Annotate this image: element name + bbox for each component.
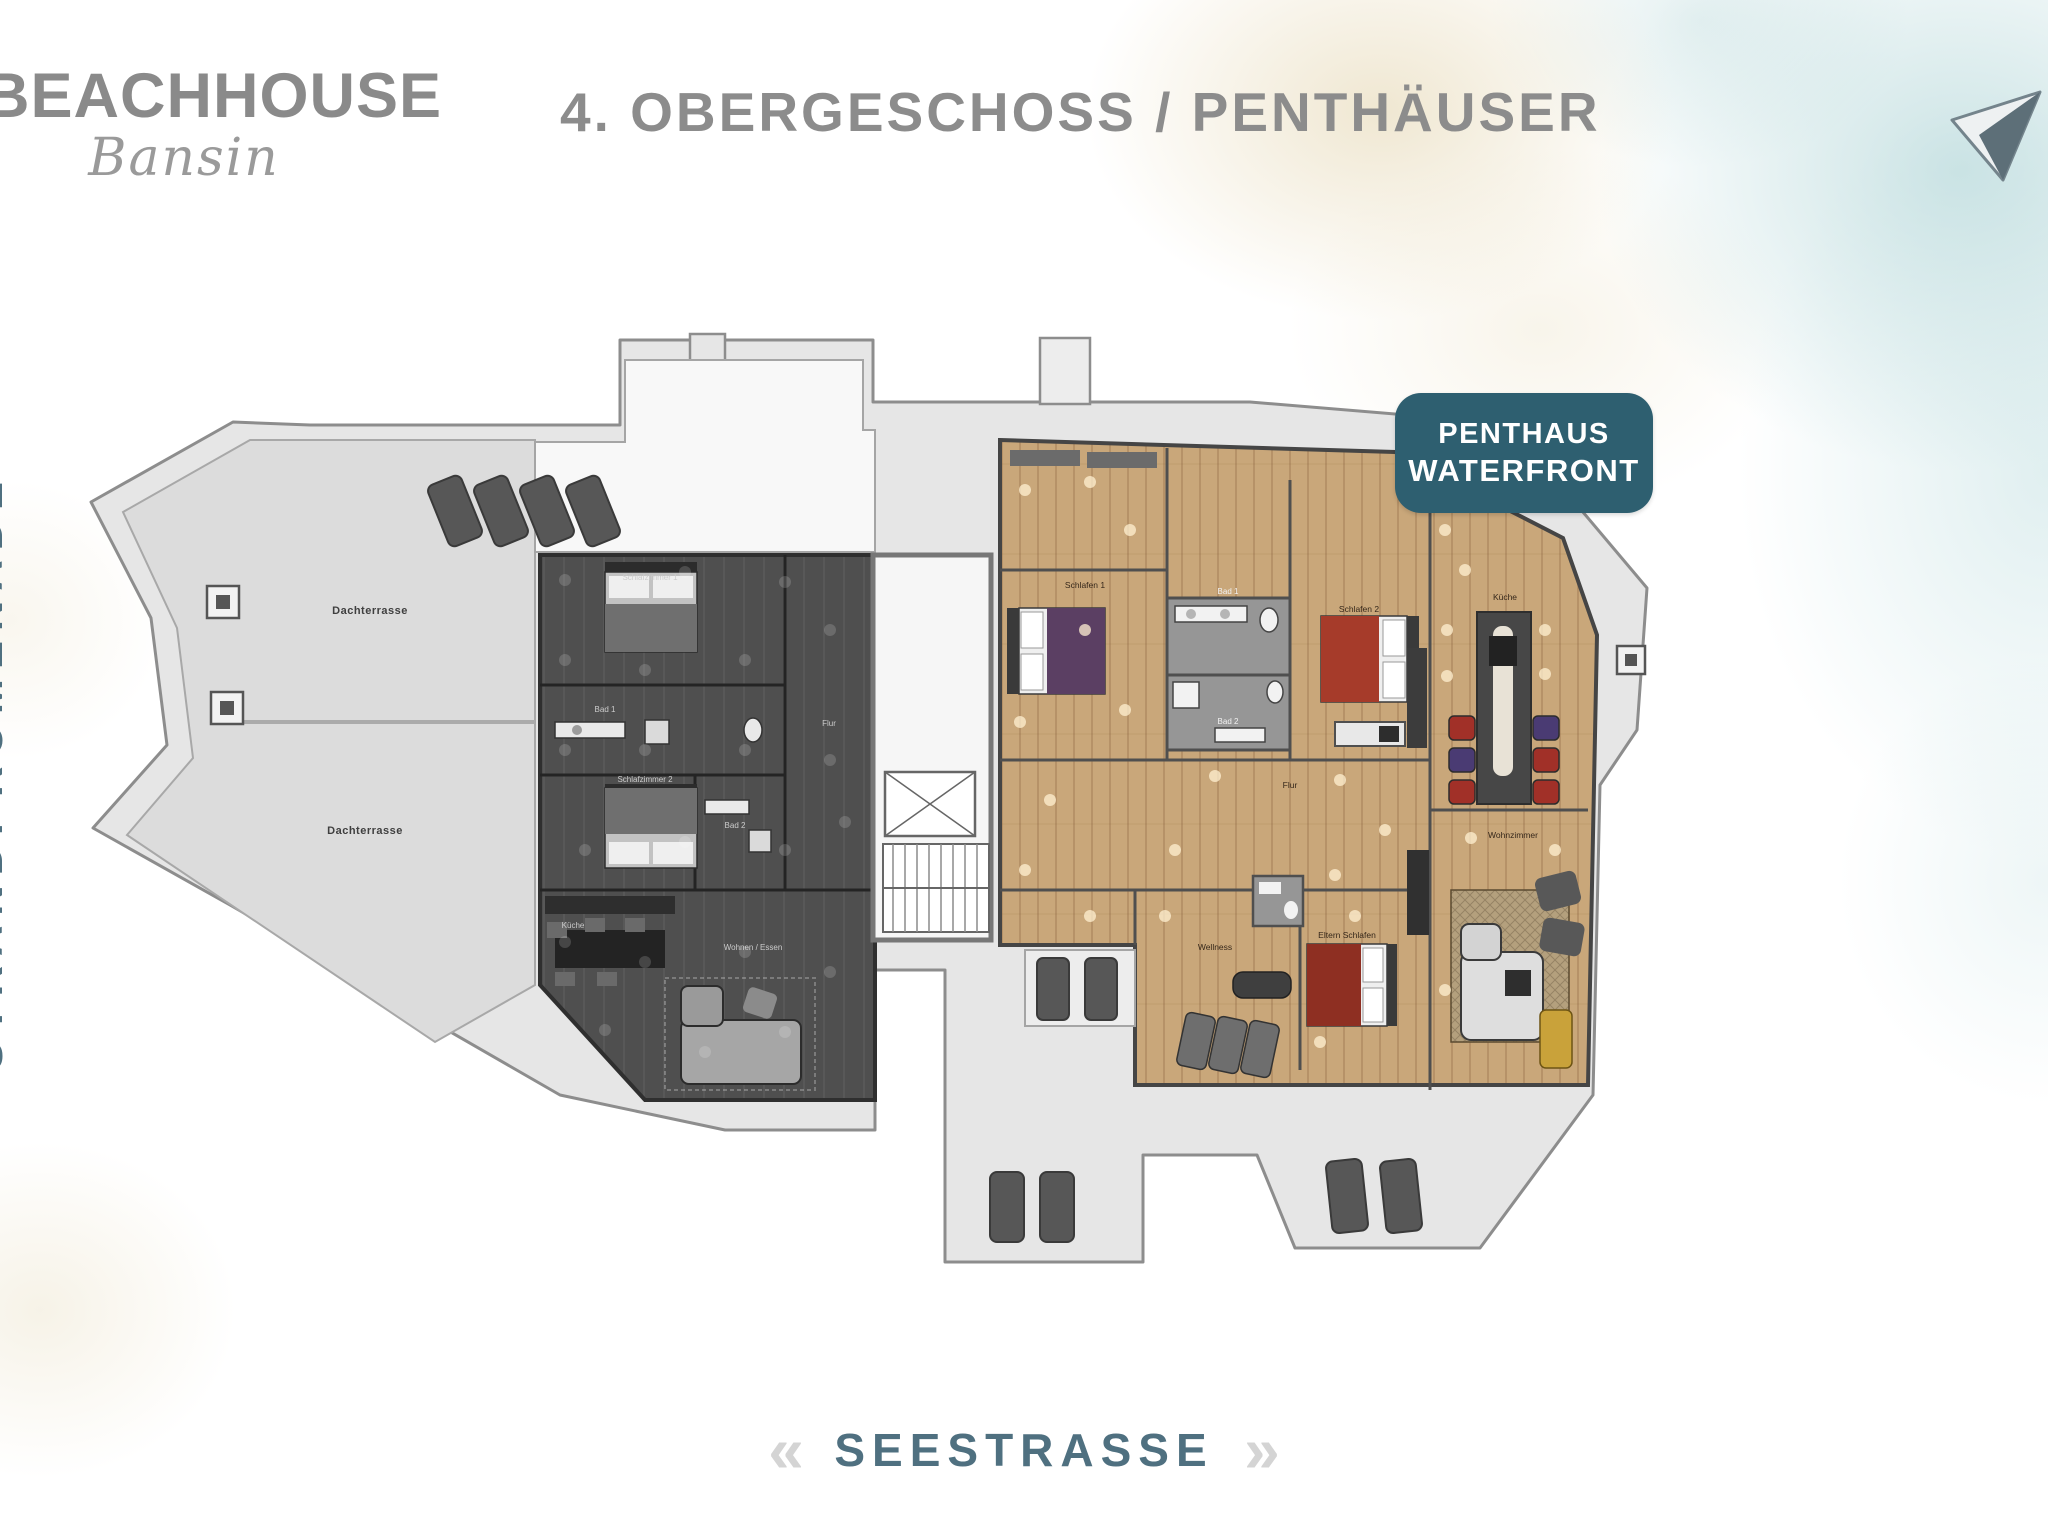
dining-island: [1477, 612, 1531, 804]
planter-icon: [1617, 646, 1645, 674]
logo-title: BEACHHOUSE: [0, 60, 384, 132]
bathroom-block: [1253, 876, 1303, 926]
staircase: [883, 844, 989, 932]
room-label: Flur: [822, 719, 836, 728]
room-label: Schlafzimmer 2: [617, 775, 673, 784]
room-label: Schlafen 1: [1065, 580, 1105, 590]
page-title: 4. OBERGESCHOSS / PENTHÄUSER: [560, 80, 1540, 144]
street-label-left: STRANDPROMENADE: [0, 430, 12, 1070]
sun-lounger-icon: [1085, 958, 1117, 1020]
room-label: Küche: [562, 921, 585, 930]
room-label: Wohnzimmer: [1488, 830, 1538, 840]
room-label: Flur: [1283, 780, 1298, 790]
wardrobe: [1087, 452, 1157, 468]
recliner-icon: [1540, 1010, 1572, 1068]
sun-lounger-icon: [1040, 1172, 1074, 1242]
planter-icon: [211, 692, 243, 724]
logo-subtitle: Bansin: [0, 128, 384, 188]
street-label-seestrasse: « SEESTRASSE »: [0, 1418, 2048, 1482]
wardrobe: [1010, 450, 1080, 466]
chimney-block: [690, 334, 725, 362]
room-label: Bad 2: [725, 821, 746, 830]
chevron-left-icon: «: [742, 1414, 830, 1486]
kitchen-cabinets: [1407, 648, 1427, 748]
left-unit: Schlafzimmer 1 Bad 1 Schlafzimmer 2 Bad …: [540, 555, 875, 1100]
sun-lounger-icon: [990, 1172, 1024, 1242]
chevron-right-icon: »: [1218, 1414, 1306, 1486]
room-label: Küche: [1493, 592, 1517, 602]
bed-icon: [1307, 944, 1397, 1026]
bed-icon: [605, 784, 697, 868]
bathroom-block: [1167, 598, 1290, 750]
room-label: Schlafzimmer 1: [622, 573, 678, 582]
bed-icon: [1321, 616, 1419, 702]
street-name: SEESTRASSE: [834, 1424, 1213, 1476]
penthaus-waterfront-badge: PENTHAUS WATERFRONT: [1395, 393, 1653, 513]
room-label: Wohnen / Essen: [724, 943, 783, 952]
sun-lounger-icon: [1037, 958, 1069, 1020]
badge-line-1: PENTHAUS: [1395, 418, 1653, 451]
north-arrow-icon: [1948, 80, 2048, 190]
room-label: Bad 1: [595, 705, 616, 714]
planter-icon: [207, 586, 239, 618]
room-label: Eltern Schlafen: [1318, 930, 1376, 940]
room-label-dachterrasse-1: Dachterrasse: [332, 605, 408, 617]
badge-line-2: WATERFRONT: [1395, 453, 1653, 489]
room-label: Wellness: [1198, 942, 1232, 952]
brochure-page: BEACHHOUSE Bansin 4. OBERGESCHOSS / PENT…: [0, 0, 2048, 1538]
stair-core: [873, 555, 991, 940]
elevator-icon: [885, 772, 975, 836]
sun-lounger-icon: [1325, 1158, 1368, 1233]
fireplace: [1407, 850, 1429, 935]
kitchen-counter: [545, 896, 675, 914]
logo: BEACHHOUSE Bansin: [0, 60, 384, 188]
room-label: Bad 1: [1218, 587, 1239, 596]
coffee-table: [1505, 970, 1531, 996]
roof-block: [1040, 338, 1090, 404]
room-label: Bad 2: [1218, 717, 1239, 726]
living-room-furniture: [1451, 869, 1586, 1068]
room-label: Schlafen 2: [1339, 604, 1379, 614]
room-label-dachterrasse-2: Dachterrasse: [327, 825, 403, 837]
armchair-icon: [1538, 917, 1585, 958]
sun-lounger-icon: [1379, 1158, 1422, 1233]
bed-icon: [1007, 608, 1105, 694]
